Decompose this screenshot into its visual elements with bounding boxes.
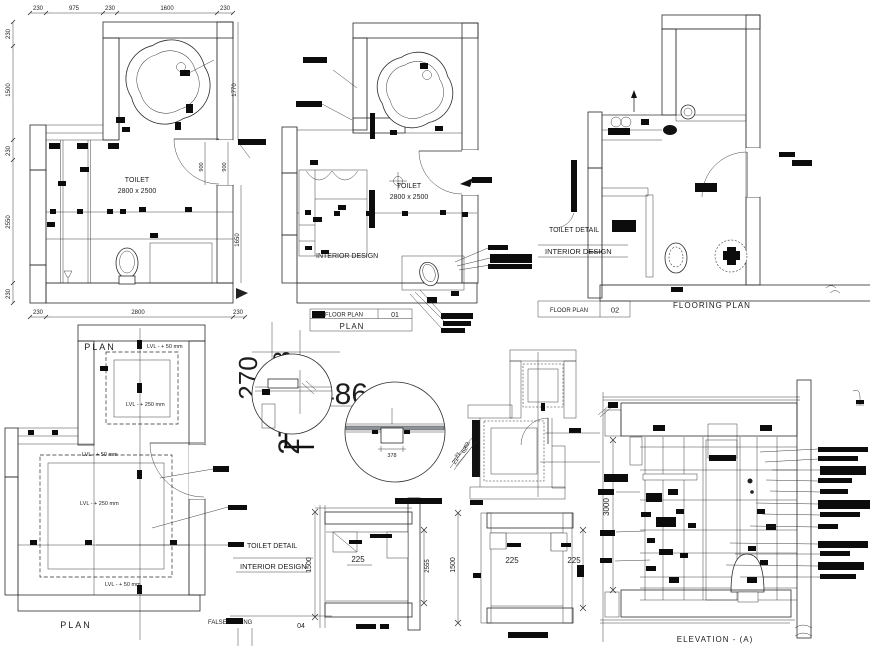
callout-bar [818, 456, 858, 461]
leader-line [766, 480, 818, 481]
callout-bar [427, 297, 437, 303]
callout-bar [334, 211, 340, 216]
wall [462, 23, 478, 150]
dim-label: 378 [387, 453, 396, 459]
callout-bar [490, 254, 532, 263]
callout-bar [820, 466, 866, 475]
ceiling-recess-inner [48, 463, 164, 569]
callout-bar [709, 455, 736, 461]
callout-bar [723, 251, 740, 260]
callout-bar [120, 209, 126, 214]
room-label: TOILET [397, 183, 422, 190]
ceiling-recess [484, 421, 544, 481]
callout-bar [818, 524, 838, 529]
callout-bar [80, 167, 89, 172]
plan-1-toilet-plan: 230 975 230 1600 230 230 1500 230 2550 2… [6, 6, 248, 352]
callout-bar [137, 340, 142, 349]
wall [282, 173, 297, 235]
dim-label: 225 [505, 556, 519, 565]
callout-bar [653, 425, 665, 431]
section-arrow [236, 288, 248, 299]
callout-bar [139, 207, 146, 212]
callout-bar [228, 542, 244, 547]
wall [189, 499, 205, 595]
callout-bar [818, 562, 864, 570]
callout-bar [321, 250, 329, 254]
callout-bar [170, 540, 177, 545]
callout-bar [680, 553, 688, 558]
callout-bar [435, 126, 443, 131]
wall [297, 283, 477, 303]
callout-bar [185, 207, 192, 212]
slab [325, 603, 412, 617]
callout-bar [150, 233, 158, 238]
leader-line [730, 543, 818, 544]
wall [18, 595, 200, 611]
callout-bar [820, 574, 856, 579]
callout-bar [646, 566, 656, 571]
dim-label: 225 [351, 555, 365, 564]
callout-bar [116, 117, 125, 123]
wall [353, 23, 478, 38]
wall [5, 477, 18, 595]
callout-bar [600, 530, 615, 536]
wall [510, 350, 576, 361]
callout-bar [443, 321, 471, 326]
block-label: FLOOR PLAN [550, 308, 588, 314]
callout-bar [488, 264, 532, 269]
plan-3-flooring-plan: TOILET DETAIL INTERIOR DESIGN FLOOR PLAN… [538, 15, 870, 317]
plan-2-interior-plan: TOILET 2800 x 2500 INTERIOR DESIGN FLOOR… [282, 23, 478, 331]
callout-bar [561, 543, 571, 547]
callout-bar [356, 624, 376, 629]
callout-bar [470, 500, 483, 505]
callout-bar [296, 101, 322, 107]
title-block-02: FLOOR PLAN 02 [538, 301, 630, 317]
wall-dark [30, 265, 46, 303]
wall [78, 341, 94, 445]
callout-bar [541, 403, 545, 411]
callout-bar [571, 160, 577, 212]
door-swing [419, 150, 478, 195]
callout-bar [50, 209, 56, 214]
interior-design-label: INTERIOR DESIGN [545, 247, 612, 256]
slab [487, 513, 573, 528]
dim-label: 230 [233, 310, 244, 316]
callout-bar [370, 113, 375, 139]
wall [468, 405, 512, 418]
wall [30, 170, 46, 265]
callout-bar [856, 400, 864, 404]
callout-bar [820, 551, 850, 556]
callout-bar [52, 430, 58, 435]
dim-label: 225 [567, 556, 581, 565]
slab-edge [605, 592, 619, 617]
wall-dark [30, 125, 46, 170]
callout-bar [137, 585, 142, 594]
callout-bar [313, 217, 322, 222]
dim-top: 230 975 230 1600 230 [28, 6, 235, 15]
wall [46, 283, 233, 303]
wall [600, 285, 870, 301]
wall-dark [5, 428, 18, 477]
callout-bar [186, 104, 193, 113]
callout-bar [28, 430, 34, 435]
sheet-number: 04 [297, 623, 305, 630]
fixture-dot [750, 490, 754, 494]
wall [662, 15, 760, 29]
dim-left: 230 1500 230 2550 230 [6, 20, 15, 305]
callout-bar [818, 447, 868, 452]
slab [487, 608, 573, 623]
dim-label: 2550 [6, 215, 12, 229]
callout-bar [370, 534, 392, 538]
ceiling-recess-inner [491, 428, 537, 474]
dim-label: 1500 [450, 557, 457, 573]
callout-bar [310, 160, 318, 165]
cistern-box [708, 424, 737, 458]
callout-bar [508, 632, 548, 638]
callout-bar [688, 523, 696, 528]
dim-label: 1650 [235, 233, 241, 247]
callout-bar [818, 500, 870, 509]
plan1-title: PLAN [84, 342, 116, 352]
slab-edge [605, 410, 621, 436]
callout-bar [760, 560, 768, 565]
callout-bar [108, 143, 119, 149]
callout-bar [369, 190, 375, 228]
floor-trap [64, 271, 72, 283]
slab [325, 512, 412, 524]
pelmet-box [490, 533, 506, 549]
callout-bar [462, 212, 468, 217]
callout-bar [779, 152, 795, 157]
dim-label: 230 [33, 6, 44, 12]
wall [217, 185, 233, 283]
plan4-title: PLAN [60, 620, 92, 630]
wall [662, 29, 676, 115]
leader-line [415, 292, 445, 322]
leader-line [756, 503, 818, 504]
wall [630, 437, 642, 465]
interior-design-label: INTERIOR DESIGN [240, 562, 307, 571]
callout-bar [569, 428, 581, 433]
callout-bar [366, 211, 372, 216]
callout-bar [818, 478, 852, 483]
leader-line [750, 526, 818, 527]
callout-bar [262, 389, 270, 395]
bathtub [112, 26, 223, 137]
callout-bar [671, 287, 683, 292]
callout-bar [303, 57, 327, 63]
leader-line [152, 507, 228, 528]
callout-bar [600, 558, 612, 563]
low-wall [646, 195, 653, 277]
section-detail-2: 1500 225 225 [450, 513, 583, 623]
wall [563, 513, 572, 623]
wall-dark [588, 112, 602, 168]
callout-bar [213, 466, 229, 472]
wall [103, 38, 119, 140]
leader-line [770, 491, 820, 492]
room-size: 2800 x 2500 [118, 188, 157, 195]
callout-bar [349, 540, 362, 544]
ceiling-recess-inner [528, 369, 558, 402]
callout-bar [30, 540, 37, 545]
callout-bar [604, 474, 628, 482]
wall [746, 197, 760, 285]
callout-bar [228, 505, 247, 510]
level-label: LVL - + 250 mm [80, 501, 119, 507]
wall-dark [282, 127, 297, 173]
callout-bar [748, 546, 756, 551]
callout-bar [312, 311, 325, 318]
callout-bar [747, 577, 757, 583]
callout-bar [507, 543, 521, 547]
callout-bar [608, 128, 630, 135]
callout-bar [659, 549, 673, 555]
callout-bar [441, 313, 473, 319]
block-number: 02 [611, 306, 619, 315]
wall [353, 38, 367, 130]
callout-bar [305, 210, 311, 215]
block-number: 01 [391, 312, 399, 319]
callout-bar [137, 383, 142, 393]
wall-column [797, 380, 811, 638]
wall [189, 341, 205, 445]
dim-label: 1500 [306, 557, 313, 573]
callout-bar [122, 127, 130, 132]
block-label: FLOOR PLAN [325, 313, 363, 319]
callout-bar [669, 577, 679, 583]
callout-bar [598, 489, 614, 495]
door-swing [174, 139, 233, 185]
dim-label: 1500 [6, 83, 12, 97]
dim-label: 230 [220, 6, 231, 12]
callout-bar [641, 119, 649, 125]
bathtub [365, 40, 465, 140]
leader-line [760, 449, 818, 452]
dim-bottom: 230 2800 230 [28, 310, 247, 319]
callout-bar [820, 489, 848, 494]
callout-bar [238, 139, 266, 145]
wall-dark [282, 235, 297, 283]
fixture-dot [748, 479, 753, 484]
callout-bar [49, 143, 60, 149]
center-details: 270 808 304 486 27 378 21 62 [233, 322, 474, 482]
drawing-canvas: 230 975 230 1600 230 230 1500 230 2550 2… [0, 0, 870, 646]
dim-label: 230 [6, 288, 12, 299]
callout-bar [695, 183, 717, 192]
level-label: LVL - + 50 mm [82, 452, 118, 458]
wall [746, 15, 760, 148]
dim-label: 1600 [160, 6, 174, 12]
leader-line [160, 469, 213, 478]
elevation-caption: ELEVATION - (A) [677, 635, 754, 644]
leader-line [322, 104, 352, 120]
wall [510, 361, 521, 418]
callout-bar [107, 209, 113, 214]
dim-label: 2555 [425, 559, 431, 573]
callout-bar [390, 130, 397, 135]
callout-bar [380, 624, 389, 629]
dim-label: 230 [33, 310, 44, 316]
callout-bar [757, 509, 765, 514]
callout-bar [395, 498, 442, 504]
ceiling-recess [40, 455, 172, 577]
level-label: LVL - + 250 mm [126, 402, 165, 408]
cad-sheet: 230 975 230 1600 230 230 1500 230 2550 2… [0, 0, 870, 646]
break-mark [795, 625, 812, 636]
dim-label: 900 [199, 162, 205, 171]
wall [470, 487, 565, 499]
callout-bar [404, 430, 410, 434]
callout-bar [137, 470, 142, 479]
flooring-plan-caption: FLOORING PLAN [673, 301, 751, 310]
callout-bar [338, 205, 346, 210]
dim-label: 1770 [232, 83, 238, 97]
leader-line [459, 265, 490, 270]
callout-bar [608, 402, 618, 408]
title-block-01: FLOOR PLAN 01 PLAN [310, 309, 412, 331]
wall [481, 513, 491, 623]
dim-label: 900 [222, 162, 228, 171]
dim-label: 230 [6, 145, 12, 156]
toilet-detail-label: TOILET DETAIL [247, 543, 297, 550]
low-wall [602, 188, 648, 196]
callout-bar [77, 143, 88, 149]
detail-bubble-2: 378 [345, 382, 445, 482]
wall [552, 446, 565, 488]
wall-dark [472, 420, 480, 477]
wall [462, 195, 478, 283]
dim-label: 2800 [131, 310, 145, 316]
wall [217, 22, 233, 140]
wall [588, 168, 602, 252]
callout-bar [820, 512, 860, 517]
wall [103, 22, 233, 38]
callout-bar [472, 177, 492, 183]
callout-bar [792, 160, 812, 166]
callout-bar [668, 489, 678, 495]
callout-bar [226, 618, 243, 624]
leader-line [765, 459, 818, 462]
callout-bar [441, 328, 465, 333]
dim-label: 230 [105, 6, 116, 12]
toilet-wc [116, 248, 138, 284]
callout-bar [451, 291, 459, 296]
plan2-title: PLAN [340, 322, 365, 331]
callout-bar [656, 517, 676, 527]
callout-bar [577, 565, 584, 577]
level-label: LVL - + 50 mm [147, 344, 183, 350]
wall [78, 325, 205, 341]
pelmet-box [551, 533, 567, 551]
callout-bar [47, 222, 55, 227]
callout-bar [766, 524, 776, 530]
north-arrow [631, 90, 637, 98]
callout-bar [100, 366, 108, 371]
callout-bar [372, 430, 378, 434]
wall [564, 361, 576, 418]
room-label: TOILET [125, 177, 150, 184]
callout-bar [676, 509, 684, 514]
leader-line [420, 290, 443, 315]
callout-bar [760, 425, 772, 431]
callout-bar [175, 122, 181, 130]
false-ceiling-mini-plan: 21 62 [452, 350, 614, 499]
dim-label: 3000 [602, 498, 611, 516]
break-mark [826, 286, 840, 294]
callout-bar [612, 220, 636, 232]
leader-line [615, 560, 650, 561]
callout-bar [818, 541, 868, 548]
basin-dark [663, 125, 677, 135]
callout-bar [77, 209, 83, 214]
callout-bar [420, 63, 428, 69]
dim-label: 975 [69, 6, 80, 12]
shelf-panel [643, 474, 697, 480]
callout-bar [402, 211, 408, 216]
wall-column [408, 498, 420, 630]
toilet-wc [665, 243, 687, 273]
toilet-detail-label: TOILET DETAIL [549, 227, 599, 234]
callout-bar [85, 540, 92, 545]
door-swing [150, 443, 205, 499]
slab [621, 403, 797, 436]
interior-design-label: INTERIOR DESIGN [316, 253, 378, 260]
shower-area [150, 243, 212, 283]
callout-bar [646, 493, 662, 502]
callout-bar [58, 181, 66, 186]
section-detail-1: 1500 225 2555 [306, 498, 431, 630]
level-label: LVL - + 50 mm [105, 582, 141, 588]
callout-bar [647, 538, 655, 543]
leader-line [410, 294, 442, 329]
room-size: 2800 x 2500 [390, 194, 429, 201]
dim-label: 230 [6, 28, 12, 39]
ceiling-recess [523, 364, 563, 407]
callout-bar [473, 573, 481, 578]
callout-bar [440, 210, 446, 215]
callout-bar [641, 512, 651, 517]
callout-bar [488, 245, 508, 250]
leader-line [616, 531, 645, 532]
callout-bar [305, 246, 312, 250]
toilet-wc [417, 260, 442, 288]
